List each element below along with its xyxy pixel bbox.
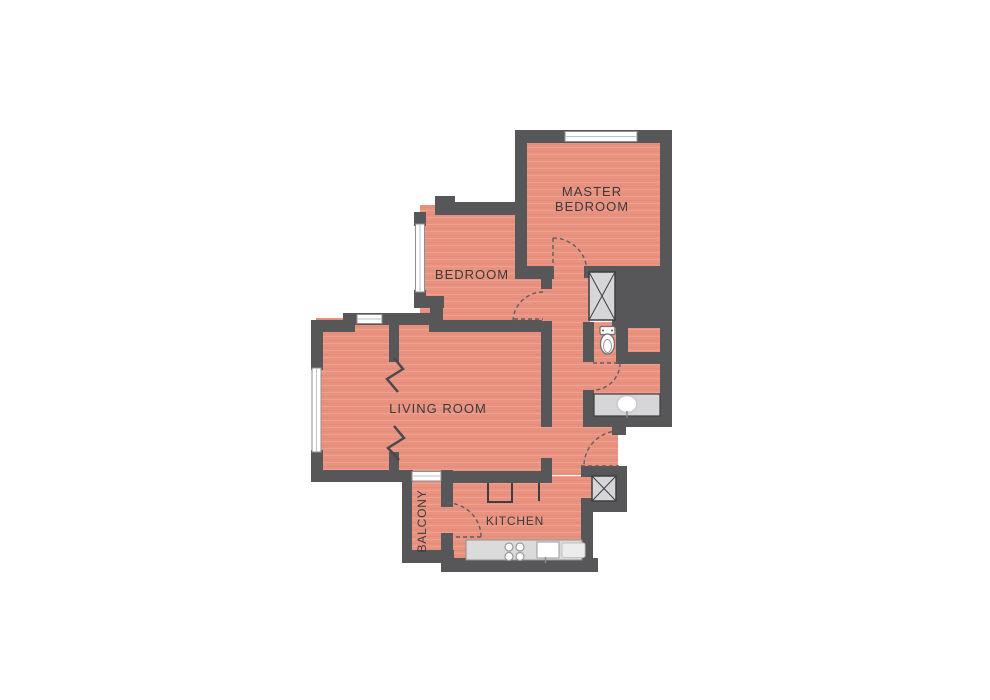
vanity-sink — [594, 394, 660, 418]
kitchen-counter — [466, 540, 585, 563]
label-living-room: LIVING ROOM — [389, 401, 487, 416]
label-master-bedroom-line1: MASTER — [562, 184, 622, 199]
room-living-room — [316, 318, 548, 478]
sink-icon — [617, 396, 637, 413]
floor-plan-drawing: MASTER BEDROOM BEDROOM LIVING ROOM KITCH… — [0, 0, 990, 700]
label-balcony: BALCONY — [415, 490, 429, 553]
toilet-icon — [600, 327, 615, 355]
floor-plan-page: MASTER BEDROOM BEDROOM LIVING ROOM KITCH… — [0, 0, 990, 700]
label-kitchen: KITCHEN — [486, 514, 544, 528]
shaft-icon — [592, 476, 616, 501]
shaft-icon — [589, 272, 615, 320]
room-hallway-lower — [546, 425, 618, 470]
label-bedroom: BEDROOM — [435, 267, 509, 282]
label-master-bedroom-line2: BEDROOM — [555, 199, 629, 214]
